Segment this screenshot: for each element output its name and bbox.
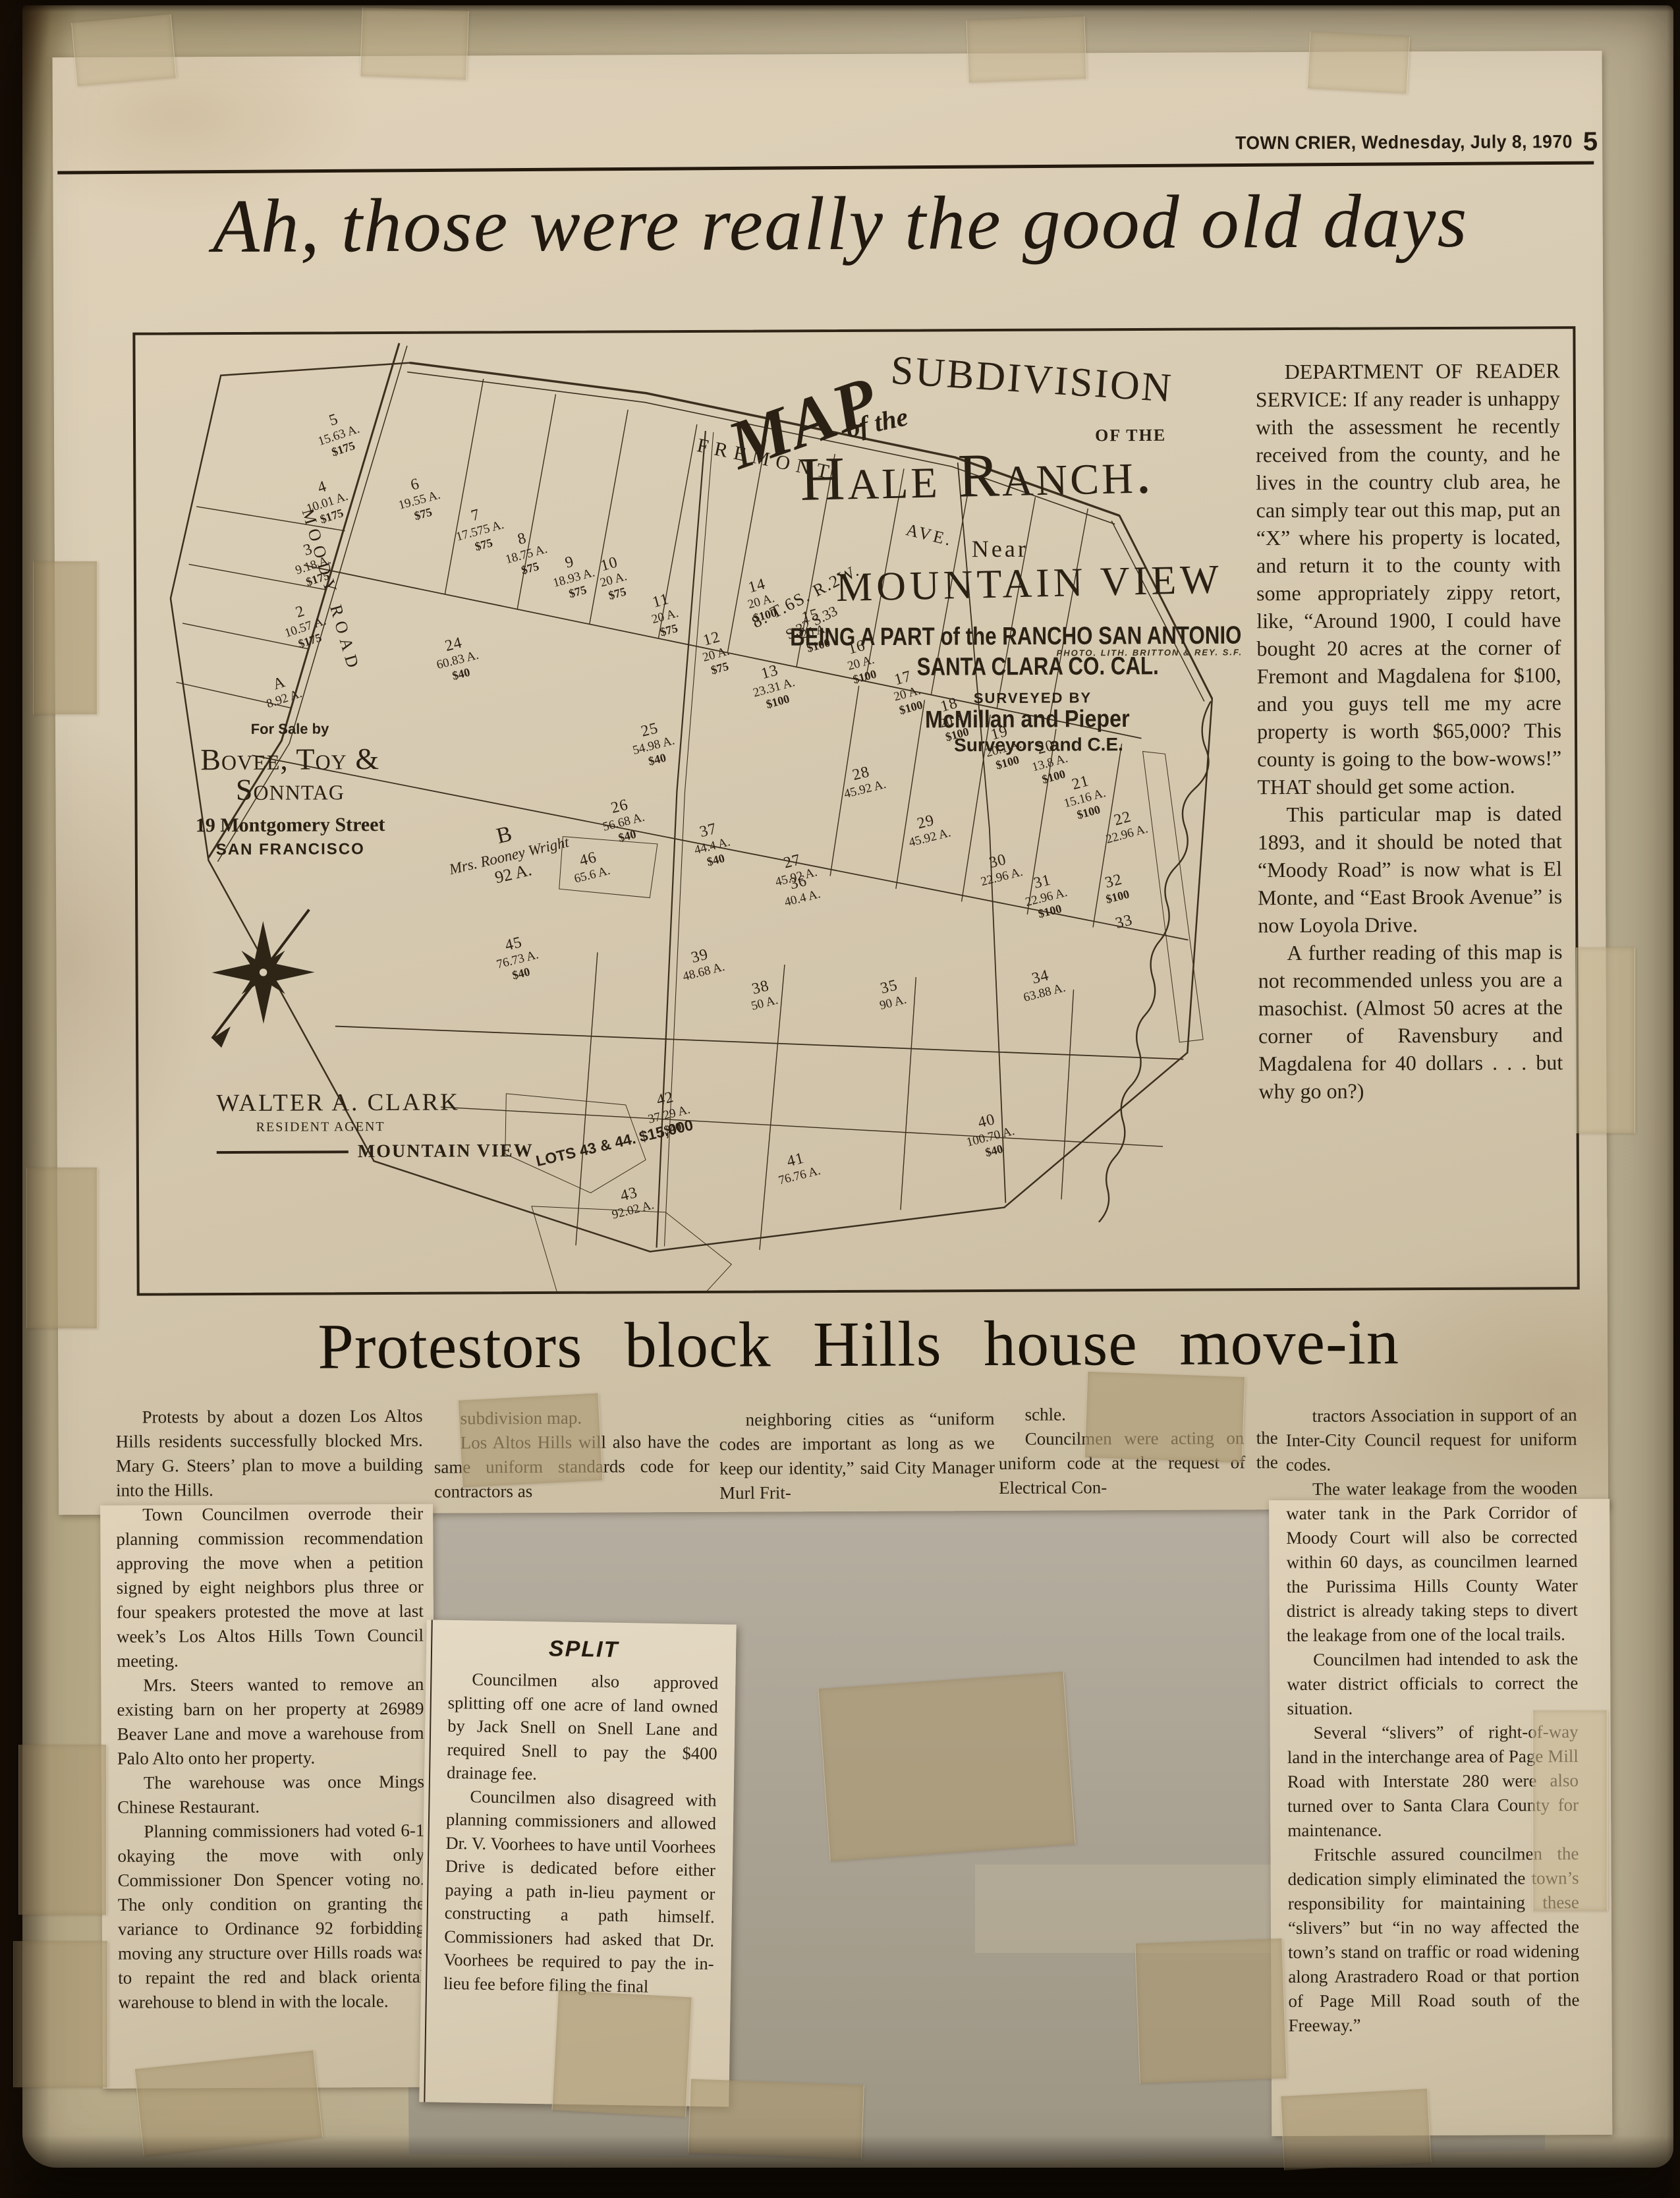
map-surveyors-name: McMillan and Pieper [925, 707, 1130, 732]
tape-strip [1084, 1372, 1245, 1463]
article-paragraph: tractors Association in support of an In… [1285, 1403, 1577, 1477]
article-paragraph: Protests by about a dozen Los Altos Hill… [115, 1404, 423, 1503]
article-paragraph: The water leakage from the wooden water … [1286, 1476, 1578, 1648]
tape-strip [1576, 947, 1635, 1133]
map-surveyed-by: SURVEYED BY [974, 690, 1092, 706]
protest-headline: Protestors block Hills house move-in [154, 1307, 1563, 1384]
main-headline: Ah, those were really the good old days [165, 174, 1516, 275]
article-paragraph: This particular map is dated 1893, and i… [1257, 799, 1562, 939]
map-title-hale-ranch: Hale Ranch. [799, 441, 1154, 511]
agent-city: MOUNTAIN VIEW [358, 1141, 534, 1162]
article-paragraph: DEPARTMENT OF READER SERVICE: If any rea… [1256, 356, 1562, 801]
map-photo-credit: PHOTO. LITH. BRITTON & REY. S.F. [1056, 648, 1243, 657]
map-figure: 5 15.63 A. $175 4 10.01 A. $175 3 9.18 A… [132, 326, 1579, 1296]
for-sale-by: For Sale by [177, 721, 403, 737]
article-paragraph: A further reading of this map is not rec… [1258, 938, 1563, 1105]
article-paragraph: Town Councilmen overrode their planning … [116, 1502, 424, 1674]
firm-name: Bovee, Toy & Sonntag [177, 744, 403, 806]
agent-title: RESIDENT AGENT [256, 1119, 493, 1134]
tape-strip [13, 1941, 108, 2087]
scrapbook-photo: TOWN CRIER, Wednesday, July 8, 19705 Ah,… [0, 0, 1680, 2198]
tape-strip [1134, 1938, 1287, 2083]
tape-strip [966, 16, 1086, 82]
map-title-mountain-view: MOUNTAIN VIEW [835, 559, 1223, 608]
tape-strip [458, 1393, 603, 1487]
split-body: Councilmen also approved splitting off o… [443, 1668, 719, 1999]
article-paragraph: neighboring cities as “uniform codes are… [719, 1407, 995, 1506]
agent-city-row: MOUNTAIN VIEW [217, 1142, 493, 1162]
news-column-3: neighboring cities as “uniform codes are… [719, 1407, 995, 1506]
firm-address: 19 Montgomery Street [177, 815, 404, 836]
agent-block: WALTER A. CLARK RESIDENT AGENT MOUNTAIN … [216, 1090, 493, 1162]
for-sale-block: For Sale by Bovee, Toy & Sonntag 19 Mont… [177, 721, 404, 858]
road-label-fremont-ave: AVE. [905, 521, 955, 549]
tape-strip [33, 561, 98, 714]
news-column-1: Protests by about a dozen Los Altos Hill… [115, 1404, 425, 2015]
tape-strip [1280, 2089, 1432, 2170]
article-paragraph: Councilmen also approved splitting off o… [447, 1668, 719, 1789]
split-title: SPLIT [449, 1636, 719, 1662]
tape-strip [360, 7, 469, 80]
firm-city: SAN FRANCISCO [177, 841, 404, 859]
tape-strip [71, 14, 177, 86]
tape-strip [18, 1745, 107, 1915]
tape-strip [1307, 32, 1410, 94]
tape-strip [1532, 1710, 1608, 1911]
newspaper-clipping-group: TOWN CRIER, Wednesday, July 8, 19705 Ah,… [0, 0, 1680, 2198]
tape-strip [551, 1990, 692, 2117]
article-paragraph: Planning commissioners had voted 6-1 oka… [117, 1818, 425, 2015]
article-paragraph: The warehouse was once Mings Chinese Res… [117, 1770, 424, 1820]
map-surveyors-title: Surveyors and C.E. [954, 735, 1123, 754]
map-title-subdivision: SUBDIVISION [889, 350, 1174, 409]
map-title-near: Near [972, 537, 1028, 561]
flourish-line [217, 1150, 349, 1154]
tape-strip [26, 1168, 98, 1328]
tape-strip [818, 1672, 1075, 1861]
masthead-title: TOWN CRIER, Wednesday, July 8, 1970 [1235, 131, 1573, 154]
agent-name: WALTER A. CLARK [216, 1090, 493, 1115]
article-paragraph: Councilmen also disagreed with planning … [443, 1784, 717, 1999]
article-paragraph: Mrs. Steers wanted to remove an existing… [117, 1672, 424, 1771]
road-label-moody: MOODY ROAD [299, 507, 363, 674]
reader-service-column: DEPARTMENT OF READER SERVICE: If any rea… [1256, 356, 1563, 1105]
masthead: TOWN CRIER, Wednesday, July 8, 19705 [1202, 127, 1598, 159]
tape-strip [688, 2079, 864, 2158]
map-title-being: BEING A PART of the RANCHO SAN ANTONIO [790, 623, 1241, 650]
page-number: 5 [1583, 127, 1598, 156]
